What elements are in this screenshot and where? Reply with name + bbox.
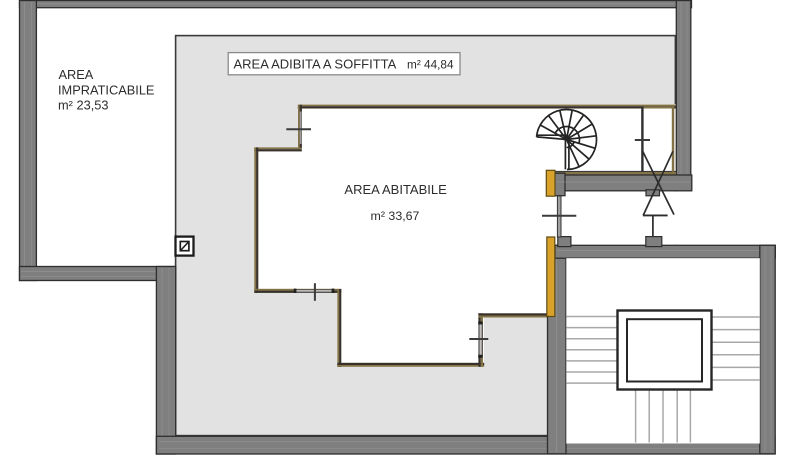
svg-text:m² 23,53: m² 23,53 [58,98,109,113]
svg-text:AREA: AREA [59,67,94,82]
svg-text:AREA ADIBITA A SOFFITTA: AREA ADIBITA A SOFFITTA [234,57,397,72]
svg-text:m² 33,67: m² 33,67 [371,209,420,223]
svg-text:AREA ABITABILE: AREA ABITABILE [344,182,447,197]
svg-text:m² 44,84: m² 44,84 [407,58,454,72]
svg-text:IMPRATICABILE: IMPRATICABILE [58,83,154,98]
